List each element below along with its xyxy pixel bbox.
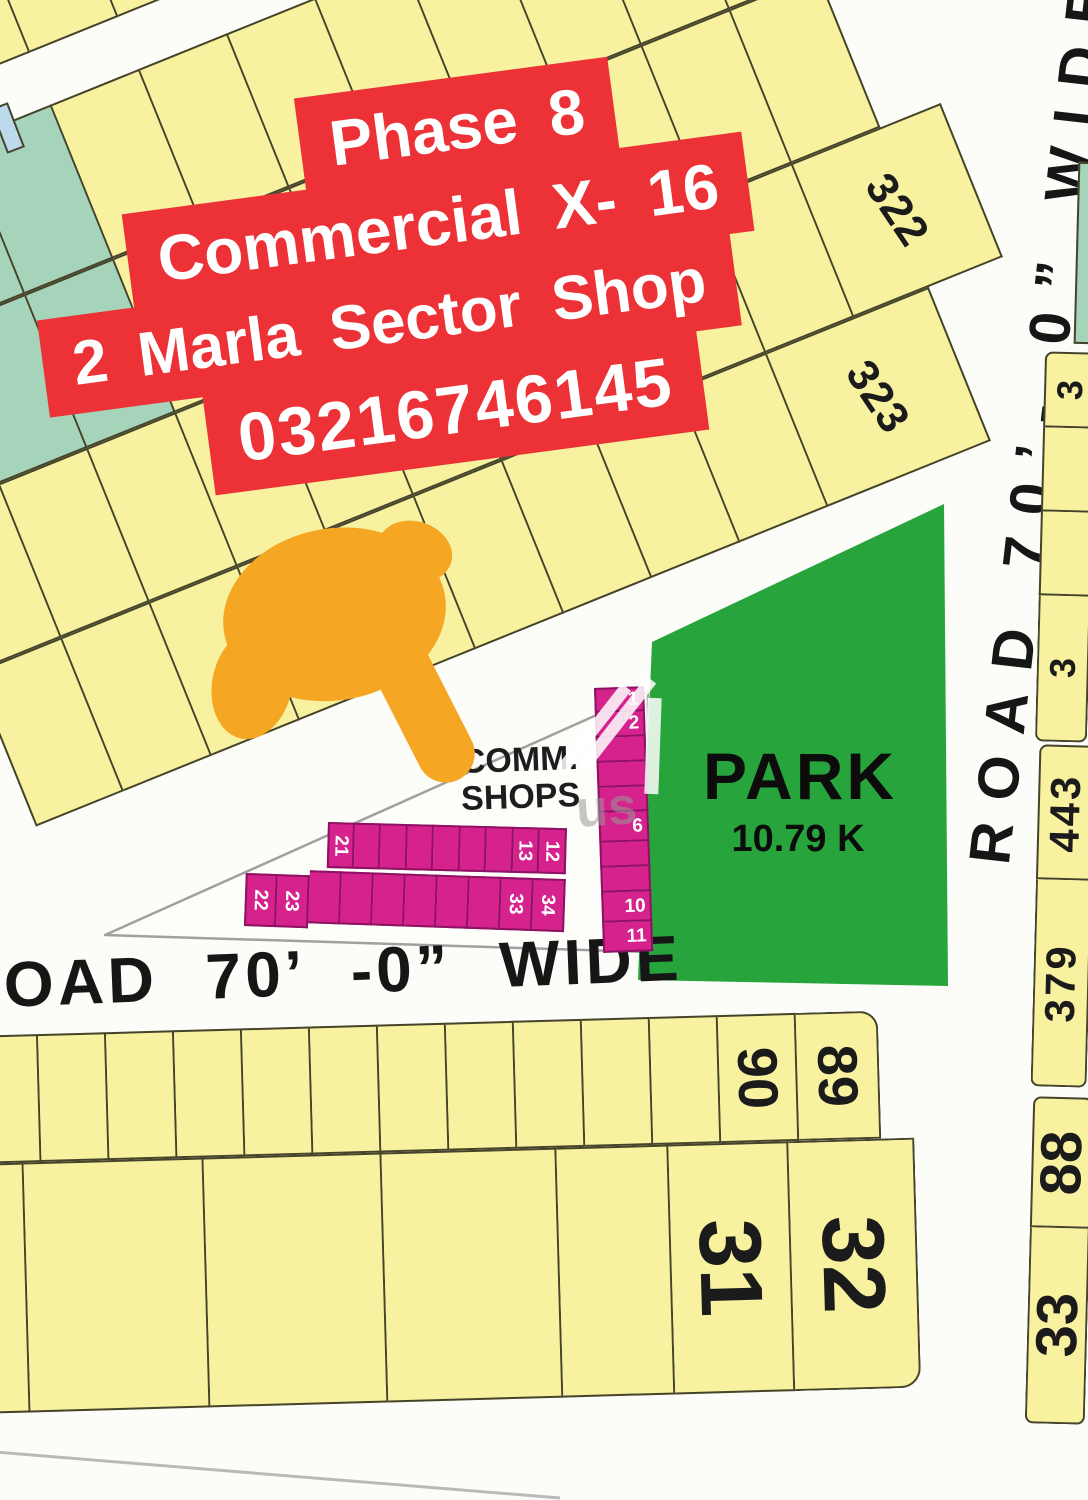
plot-number: 443	[1044, 772, 1088, 852]
plot-cell	[1039, 511, 1088, 596]
plot-cell	[436, 875, 470, 929]
right-plot-strip-top: 33	[1035, 351, 1088, 742]
plot-number: 11	[626, 926, 647, 946]
plot-number: 33	[506, 893, 526, 915]
plot-number: 88	[1032, 1130, 1088, 1196]
plot-cell: 12	[539, 828, 567, 875]
right-plot-strip-low: 8833	[1025, 1096, 1088, 1424]
plot-cell: 11	[602, 921, 653, 953]
plot-cell: 33	[1025, 1227, 1088, 1425]
plot-number: 3	[1045, 657, 1082, 678]
watermark-text: us	[574, 776, 639, 840]
plot-cell	[468, 876, 502, 930]
plot-cell	[599, 841, 650, 868]
plot-number: 22	[251, 889, 271, 911]
plot-cell	[372, 872, 406, 926]
plot-cell: 22	[244, 873, 278, 927]
plot-cell: 23	[276, 874, 310, 928]
pointing-hand-icon	[185, 505, 505, 835]
plot-cell: 10	[601, 891, 652, 923]
plot-number: 21	[331, 835, 351, 857]
plot-number: 34	[538, 894, 558, 916]
park-area-label: 10.79 K	[648, 818, 948, 861]
plot-cell: 379	[1031, 879, 1088, 1087]
plot-cell: 34	[532, 878, 566, 932]
plot-cell	[1041, 427, 1088, 512]
plot-number: 23	[282, 890, 302, 912]
plot-cell: 3	[1035, 595, 1088, 742]
map-canvas: 322 323 PARK 10.79 K ROAD 70’- 0” WIDE R…	[0, 0, 1088, 1500]
plot-number: 3	[1052, 380, 1088, 401]
plot-cell: 443	[1036, 744, 1088, 880]
plot-cell	[340, 871, 374, 925]
park-label: PARK	[645, 738, 955, 814]
plot-cell: 3	[1043, 351, 1088, 428]
plot-number: 379	[1039, 942, 1083, 1022]
plot-number: 10	[624, 896, 646, 916]
plot-number: 33	[1027, 1292, 1087, 1358]
shops-row-lower: 22233334	[244, 868, 566, 932]
lower-road-edge-line	[0, 1452, 560, 1498]
plot-number: 13	[515, 839, 535, 861]
plot-cell: 13	[512, 827, 540, 874]
right-plot-strip-mid: 443379	[1031, 744, 1088, 1087]
plot-cell	[308, 870, 342, 924]
plot-cell	[600, 866, 651, 893]
plot-cell	[404, 874, 438, 928]
plot-cell: 33	[500, 877, 534, 931]
plot-number: 12	[542, 840, 562, 862]
plot-cell: 88	[1030, 1096, 1088, 1229]
